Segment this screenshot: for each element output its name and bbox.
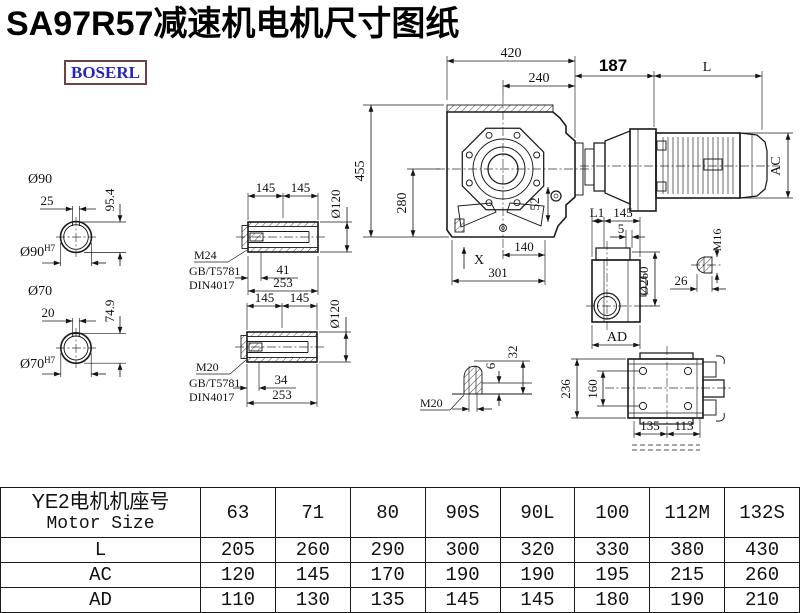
label-thread-m20-detail: M20 xyxy=(420,396,443,410)
table-cell: 290 xyxy=(350,538,425,563)
label-std-din: DIN4017 xyxy=(189,278,234,292)
dim-280: 280 xyxy=(395,193,410,214)
view-hollow-shaft-m24: 145 145 Ø120 M24 GB/T5781 DIN4017 41 253 xyxy=(189,180,352,295)
table-cell: 110 xyxy=(201,588,276,613)
dim-keyway-25: 25 xyxy=(41,193,54,208)
label-dia-70: Ø70 xyxy=(28,284,52,299)
label-std-gb2: GB/T5781 xyxy=(189,376,240,390)
table-cell: 145 xyxy=(500,588,575,613)
table-cell: 195 xyxy=(575,563,650,588)
header-cn: YE2电机机座号 xyxy=(1,491,200,514)
label-bore-70h7: Ø70H7 xyxy=(20,355,56,372)
col-header: 100 xyxy=(575,488,650,538)
row-label-L: L xyxy=(1,538,201,563)
dim-113: 113 xyxy=(674,418,693,433)
table-cell: 380 xyxy=(650,538,725,563)
view-hollow-shaft-m20: 145 145 Ø120 M20 GB/T5781 DIN4017 34 253 xyxy=(189,290,351,407)
dim-32: 32 xyxy=(505,346,520,359)
table-header-row: YE2电机机座号 Motor Size 63 71 80 90S 90L 100… xyxy=(1,488,800,538)
table-cell: 170 xyxy=(350,563,425,588)
col-header: 90S xyxy=(425,488,500,538)
rear-flange-body xyxy=(628,359,703,418)
table-cell: 190 xyxy=(500,563,575,588)
table-cell: 330 xyxy=(575,538,650,563)
view-shaft-section-90: 25 95.4 Ø90 Ø90H7 xyxy=(20,172,126,266)
view-motor-side: 187 L AC xyxy=(575,56,793,211)
dim-140: 140 xyxy=(514,239,534,254)
dim-dia-120-b: Ø120 xyxy=(327,300,342,329)
dim-6: 6 xyxy=(483,362,498,369)
dim-187: 187 xyxy=(599,56,627,75)
dim-236: 236 xyxy=(558,379,573,399)
drain-plug xyxy=(455,219,464,232)
table-cell: 300 xyxy=(425,538,500,563)
table-cell: 130 xyxy=(275,588,350,613)
dim-240: 240 xyxy=(529,71,550,86)
row-label-AD: AD xyxy=(1,588,201,613)
view-shaft-section-70: Ø70 20 74.9 Ø70H7 xyxy=(20,284,126,377)
label-thread-m16: M16 xyxy=(710,229,724,252)
dim-dia-120-a: Ø120 xyxy=(328,190,343,219)
table-cell: 430 xyxy=(725,538,800,563)
dim-5: 5 xyxy=(618,221,625,236)
col-header: 80 xyxy=(350,488,425,538)
dim-145-b: 145 xyxy=(291,180,311,195)
col-header: 132S xyxy=(725,488,800,538)
table-cell: 135 xyxy=(350,588,425,613)
table-cell: 145 xyxy=(425,588,500,613)
dim-AC: AC xyxy=(769,156,784,175)
col-header: 71 xyxy=(275,488,350,538)
cooling-fins xyxy=(663,137,733,194)
table-cell: 180 xyxy=(575,588,650,613)
fan-cover xyxy=(740,133,767,198)
label-thread-m20: M20 xyxy=(196,360,219,374)
dim-AD: AD xyxy=(607,330,627,345)
table-cell: 190 xyxy=(650,588,725,613)
page: { "title": "SA97R57减速机电机尺寸图纸", "logo": "… xyxy=(0,0,800,613)
dim-135: 135 xyxy=(640,418,660,433)
dim-455: 455 xyxy=(353,161,368,182)
dim-26: 26 xyxy=(675,273,689,288)
dim-145-a: 145 xyxy=(256,180,276,195)
table-cell: 205 xyxy=(201,538,276,563)
table-cell: 260 xyxy=(275,538,350,563)
view-rear-flange: 236 160 135 113 xyxy=(558,346,733,450)
label-bore-90h7: Ø90H7 xyxy=(20,243,56,260)
label-std-gb: GB/T5781 xyxy=(189,264,240,278)
dim-L1: L1 xyxy=(590,205,604,220)
motor-flange xyxy=(630,129,656,211)
gearbox-housing xyxy=(447,112,575,237)
dim-145-d: 145 xyxy=(290,290,310,305)
dim-L: L xyxy=(703,60,712,75)
motor-size-table: YE2电机机座号 Motor Size 63 71 80 90S 90L 100… xyxy=(0,487,800,613)
dim-52: 52 xyxy=(527,198,542,211)
header-en: Motor Size xyxy=(1,514,200,535)
table-cell: 145 xyxy=(275,563,350,588)
dim-160: 160 xyxy=(585,379,600,399)
dim-301: 301 xyxy=(488,265,508,280)
row-label-AC: AC xyxy=(1,563,201,588)
dim-depth-74-9: 74.9 xyxy=(102,300,117,323)
dim-420: 420 xyxy=(501,46,522,61)
col-header: 112M xyxy=(650,488,725,538)
dim-dia-260: Ø260 xyxy=(636,267,651,296)
dim-depth-95-4: 95.4 xyxy=(102,188,117,211)
dim-253-a: 253 xyxy=(273,275,293,290)
label-thread-m24: M24 xyxy=(194,248,217,262)
table-cell: 210 xyxy=(725,588,800,613)
view-reducer-side: L1 145 5 Ø260 AD M16 26 xyxy=(586,205,726,349)
dim-keyway-20: 20 xyxy=(42,305,55,320)
dim-34: 34 xyxy=(275,372,289,387)
table-cell: 215 xyxy=(650,563,725,588)
table-cell: 320 xyxy=(500,538,575,563)
table-row: AD 110 130 135 145 145 180 190 210 xyxy=(1,588,800,613)
table-cell: 120 xyxy=(201,563,276,588)
label-std-din2: DIN4017 xyxy=(189,390,234,404)
col-header: 90L xyxy=(500,488,575,538)
dim-253-b: 253 xyxy=(272,387,292,402)
technical-drawing: 25 95.4 Ø90 Ø90H7 Ø70 20 74.9 Ø70H7 xyxy=(0,0,800,487)
stud-m20 xyxy=(464,366,482,394)
label-x: X xyxy=(474,253,484,268)
reducer-side-body xyxy=(592,260,640,322)
table-row: AC 120 145 170 190 190 195 215 260 xyxy=(1,563,800,588)
label-dia-90: Ø90 xyxy=(28,172,52,187)
stud-m16 xyxy=(697,257,712,273)
table-cell: 260 xyxy=(725,563,800,588)
table-cell: 190 xyxy=(425,563,500,588)
table-header-motor-size: YE2电机机座号 Motor Size xyxy=(1,488,201,538)
view-gearbox-front: 420 240 455 280 52 140 301 X xyxy=(353,46,592,285)
view-stud-detail: M20 6 32 xyxy=(420,346,532,413)
col-header: 63 xyxy=(201,488,276,538)
dim-145-c: 145 xyxy=(255,290,275,305)
table-row: L 205 260 290 300 320 330 380 430 xyxy=(1,538,800,563)
dim-145-side: 145 xyxy=(613,205,633,220)
